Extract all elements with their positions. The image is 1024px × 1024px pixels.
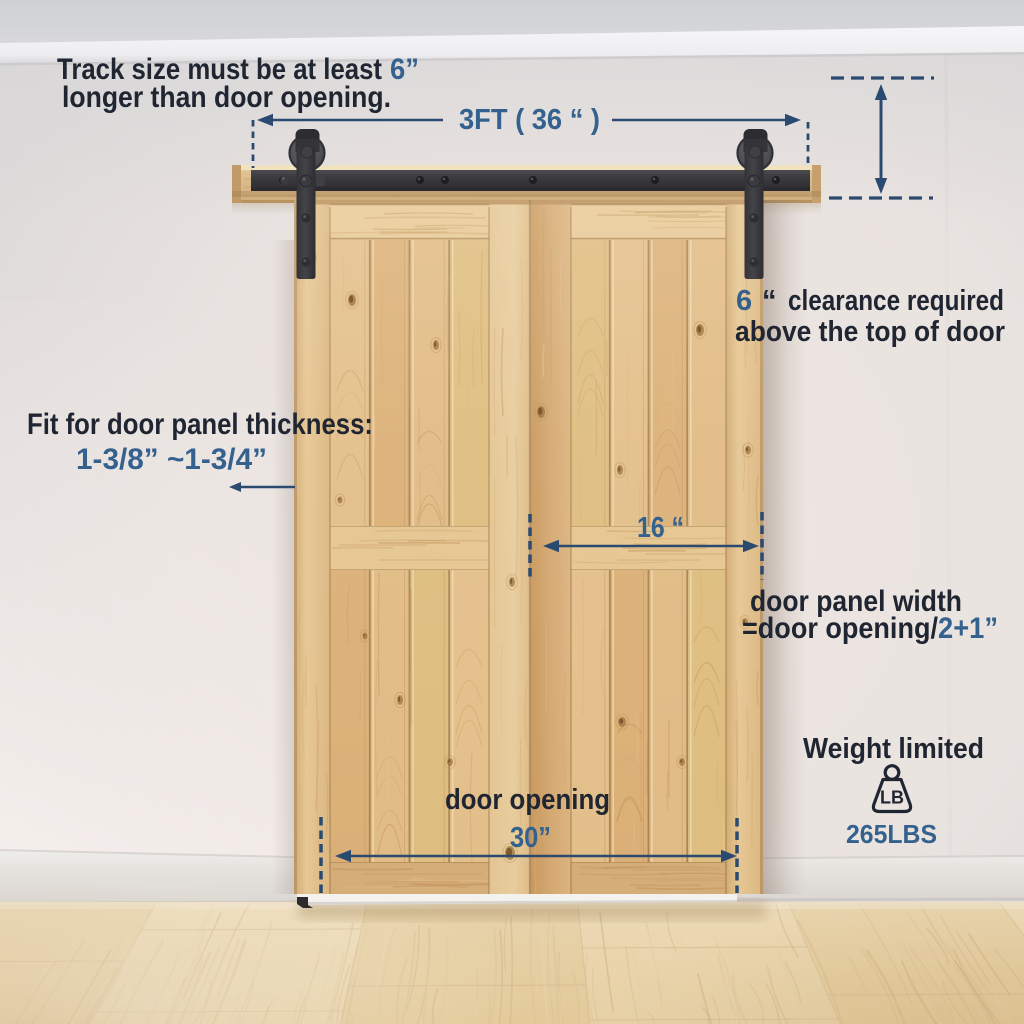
svg-text:30”: 30”: [510, 822, 551, 854]
svg-text:2+1”: 2+1”: [938, 612, 998, 645]
svg-text:clearance required: clearance required: [788, 285, 1004, 317]
svg-text:“: “: [762, 285, 777, 317]
svg-text:LB: LB: [880, 788, 904, 808]
svg-text:6: 6: [736, 285, 752, 317]
svg-text:longer than door opening.: longer than door opening.: [62, 81, 391, 114]
svg-text:265LBS: 265LBS: [846, 819, 937, 849]
svg-text:3FT ( 36 “ ): 3FT ( 36 “ ): [459, 104, 600, 136]
svg-text:16 “: 16 “: [637, 512, 684, 544]
svg-text:6”: 6”: [390, 53, 419, 86]
svg-text:above the top of door: above the top of door: [735, 316, 1005, 348]
svg-text:door opening: door opening: [445, 784, 610, 816]
svg-text:=door opening/: =door opening/: [742, 612, 939, 645]
svg-text:Fit for door panel thickness:: Fit for door panel thickness:: [27, 408, 373, 441]
svg-text:1-3/8” ~1-3/4”: 1-3/8” ~1-3/4”: [76, 443, 267, 476]
svg-text:Weight limited: Weight limited: [803, 733, 984, 765]
